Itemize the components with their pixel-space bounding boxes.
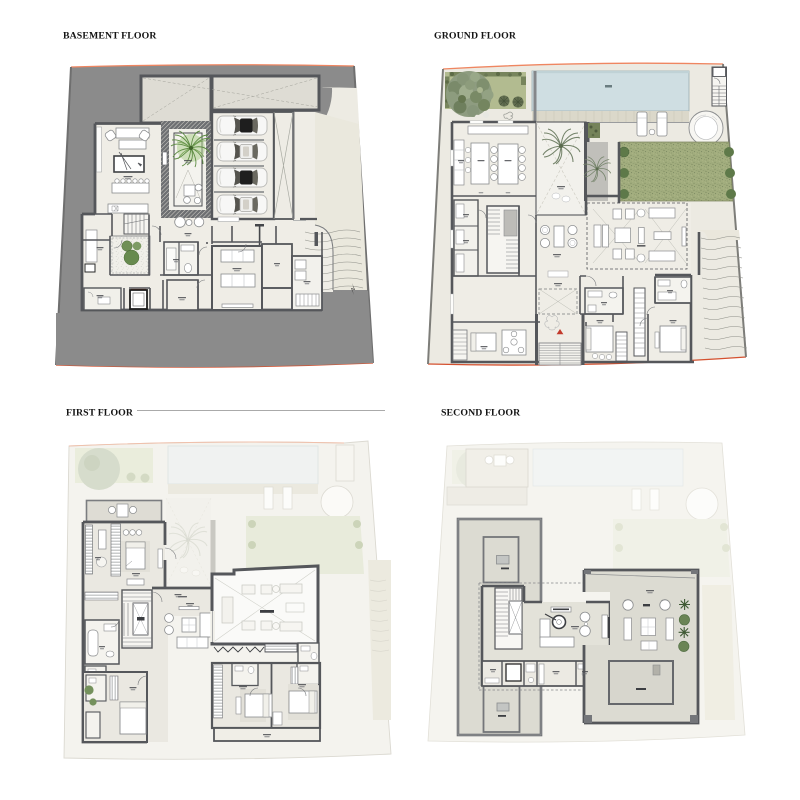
svg-text:GROUND FLOOR: GROUND FLOOR <box>434 31 517 42</box>
svg-text:SECOND FLOOR: SECOND FLOOR <box>441 408 521 419</box>
svg-text:FIRST FLOOR: FIRST FLOOR <box>66 408 134 419</box>
svg-text:BASEMENT FLOOR: BASEMENT FLOOR <box>63 31 157 42</box>
